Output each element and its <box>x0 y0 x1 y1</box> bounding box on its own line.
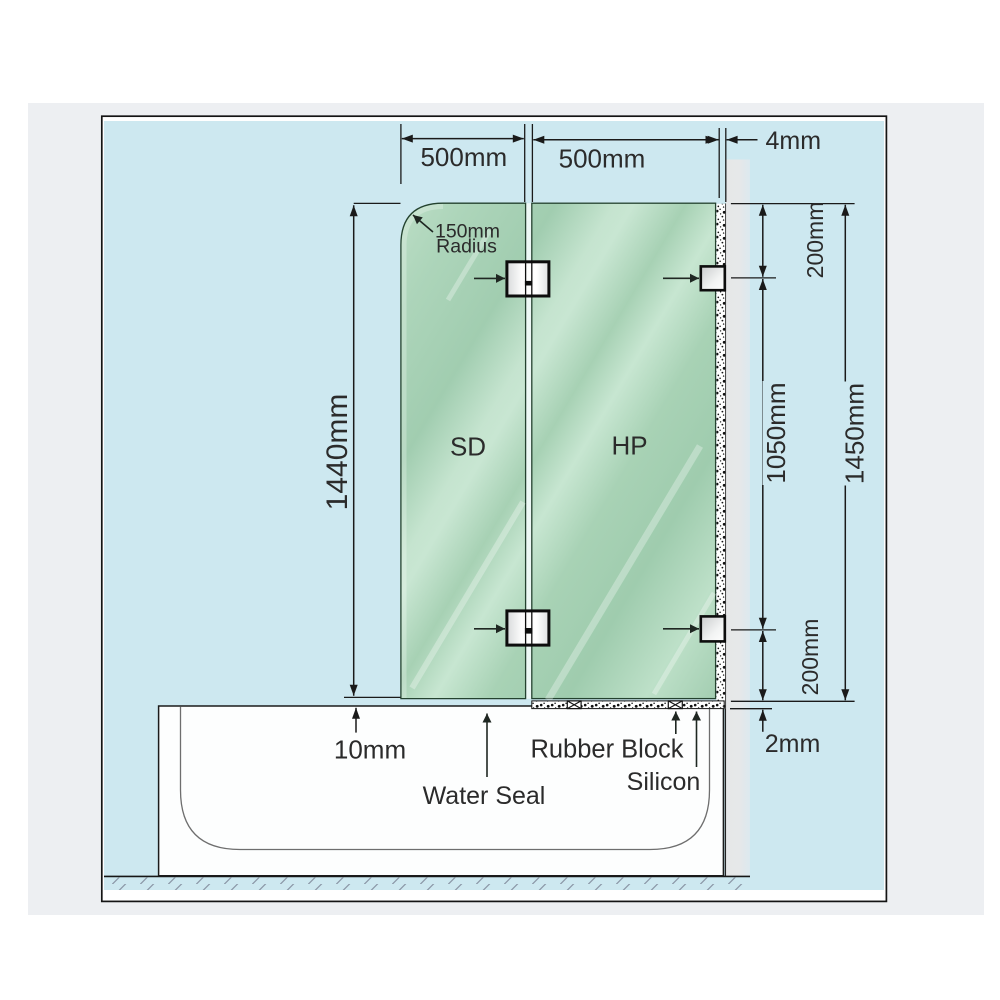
svg-text:200mm: 200mm <box>802 202 828 279</box>
svg-text:500mm: 500mm <box>420 142 507 172</box>
svg-text:Radius: Radius <box>436 236 497 258</box>
svg-text:SD: SD <box>450 432 486 462</box>
svg-text:500mm: 500mm <box>559 144 646 174</box>
svg-text:1450mm: 1450mm <box>840 383 870 484</box>
svg-text:200mm: 200mm <box>797 619 823 696</box>
svg-text:1050mm: 1050mm <box>761 382 791 483</box>
svg-text:2mm: 2mm <box>765 730 821 758</box>
svg-text:1440mm: 1440mm <box>321 394 354 511</box>
svg-text:4mm: 4mm <box>766 127 822 155</box>
svg-text:10mm: 10mm <box>334 735 406 765</box>
svg-text:Silicon: Silicon <box>627 768 701 796</box>
svg-text:Rubber Block: Rubber Block <box>530 736 683 764</box>
svg-text:HP: HP <box>611 431 647 461</box>
svg-text:Water Seal: Water Seal <box>423 782 546 810</box>
